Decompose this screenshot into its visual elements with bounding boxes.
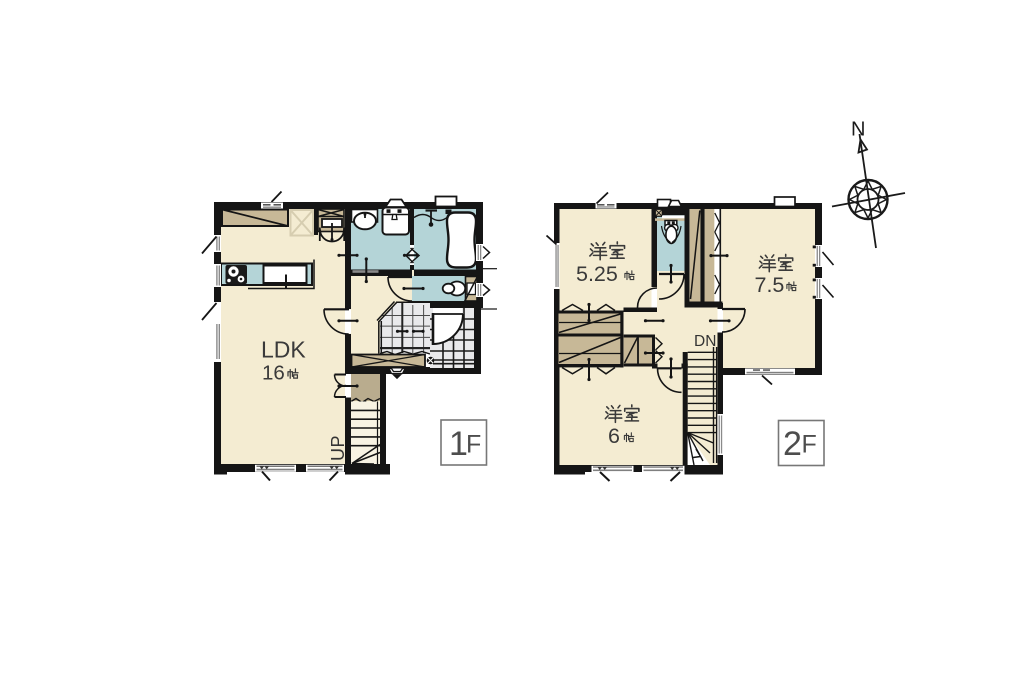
svg-text:2: 2 [783,425,802,463]
svg-text:F: F [802,431,817,459]
svg-text:LDK: LDK [261,337,306,363]
svg-text:7.5: 7.5 [755,273,785,297]
svg-text:6: 6 [608,424,620,448]
svg-text:5.25: 5.25 [576,262,618,286]
svg-text:F: F [466,431,481,459]
svg-text:16: 16 [262,362,285,385]
svg-text:UP: UP [328,435,348,461]
svg-text:DN: DN [694,333,716,350]
svg-text:N: N [851,119,865,141]
